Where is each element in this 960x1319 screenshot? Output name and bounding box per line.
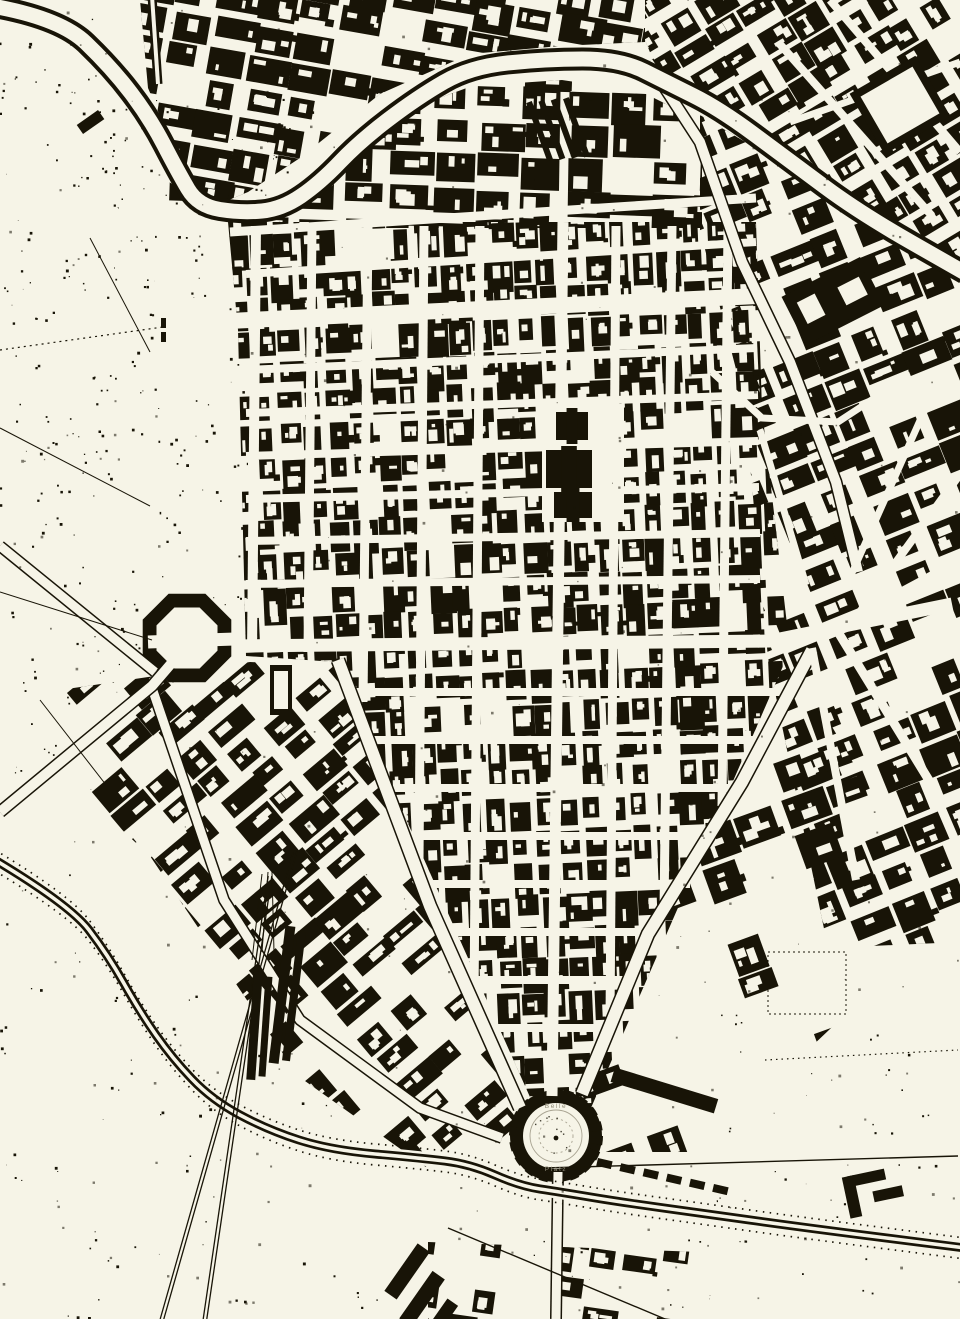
plaza-label-2: Platz xyxy=(545,1166,567,1173)
street-grid-v6 xyxy=(610,226,616,1020)
street-grid-v3 xyxy=(363,226,368,702)
round-plaza-monument xyxy=(554,1136,559,1141)
plaza-label-1: Belle xyxy=(545,1103,567,1110)
city-map: BellePlatz xyxy=(0,0,960,1319)
city-gate xyxy=(161,318,166,328)
city-gate xyxy=(161,332,166,342)
street-grid-v1 xyxy=(252,226,256,652)
street-grid-r8 xyxy=(246,579,760,584)
street-grid-v8 xyxy=(722,226,728,806)
map-viewport: BellePlatz xyxy=(0,0,960,1319)
gate-square-interior xyxy=(166,300,228,346)
octagon-plaza-interior xyxy=(157,608,218,669)
street-grid-v2 xyxy=(308,226,312,652)
street-grid-v4 xyxy=(419,226,424,860)
